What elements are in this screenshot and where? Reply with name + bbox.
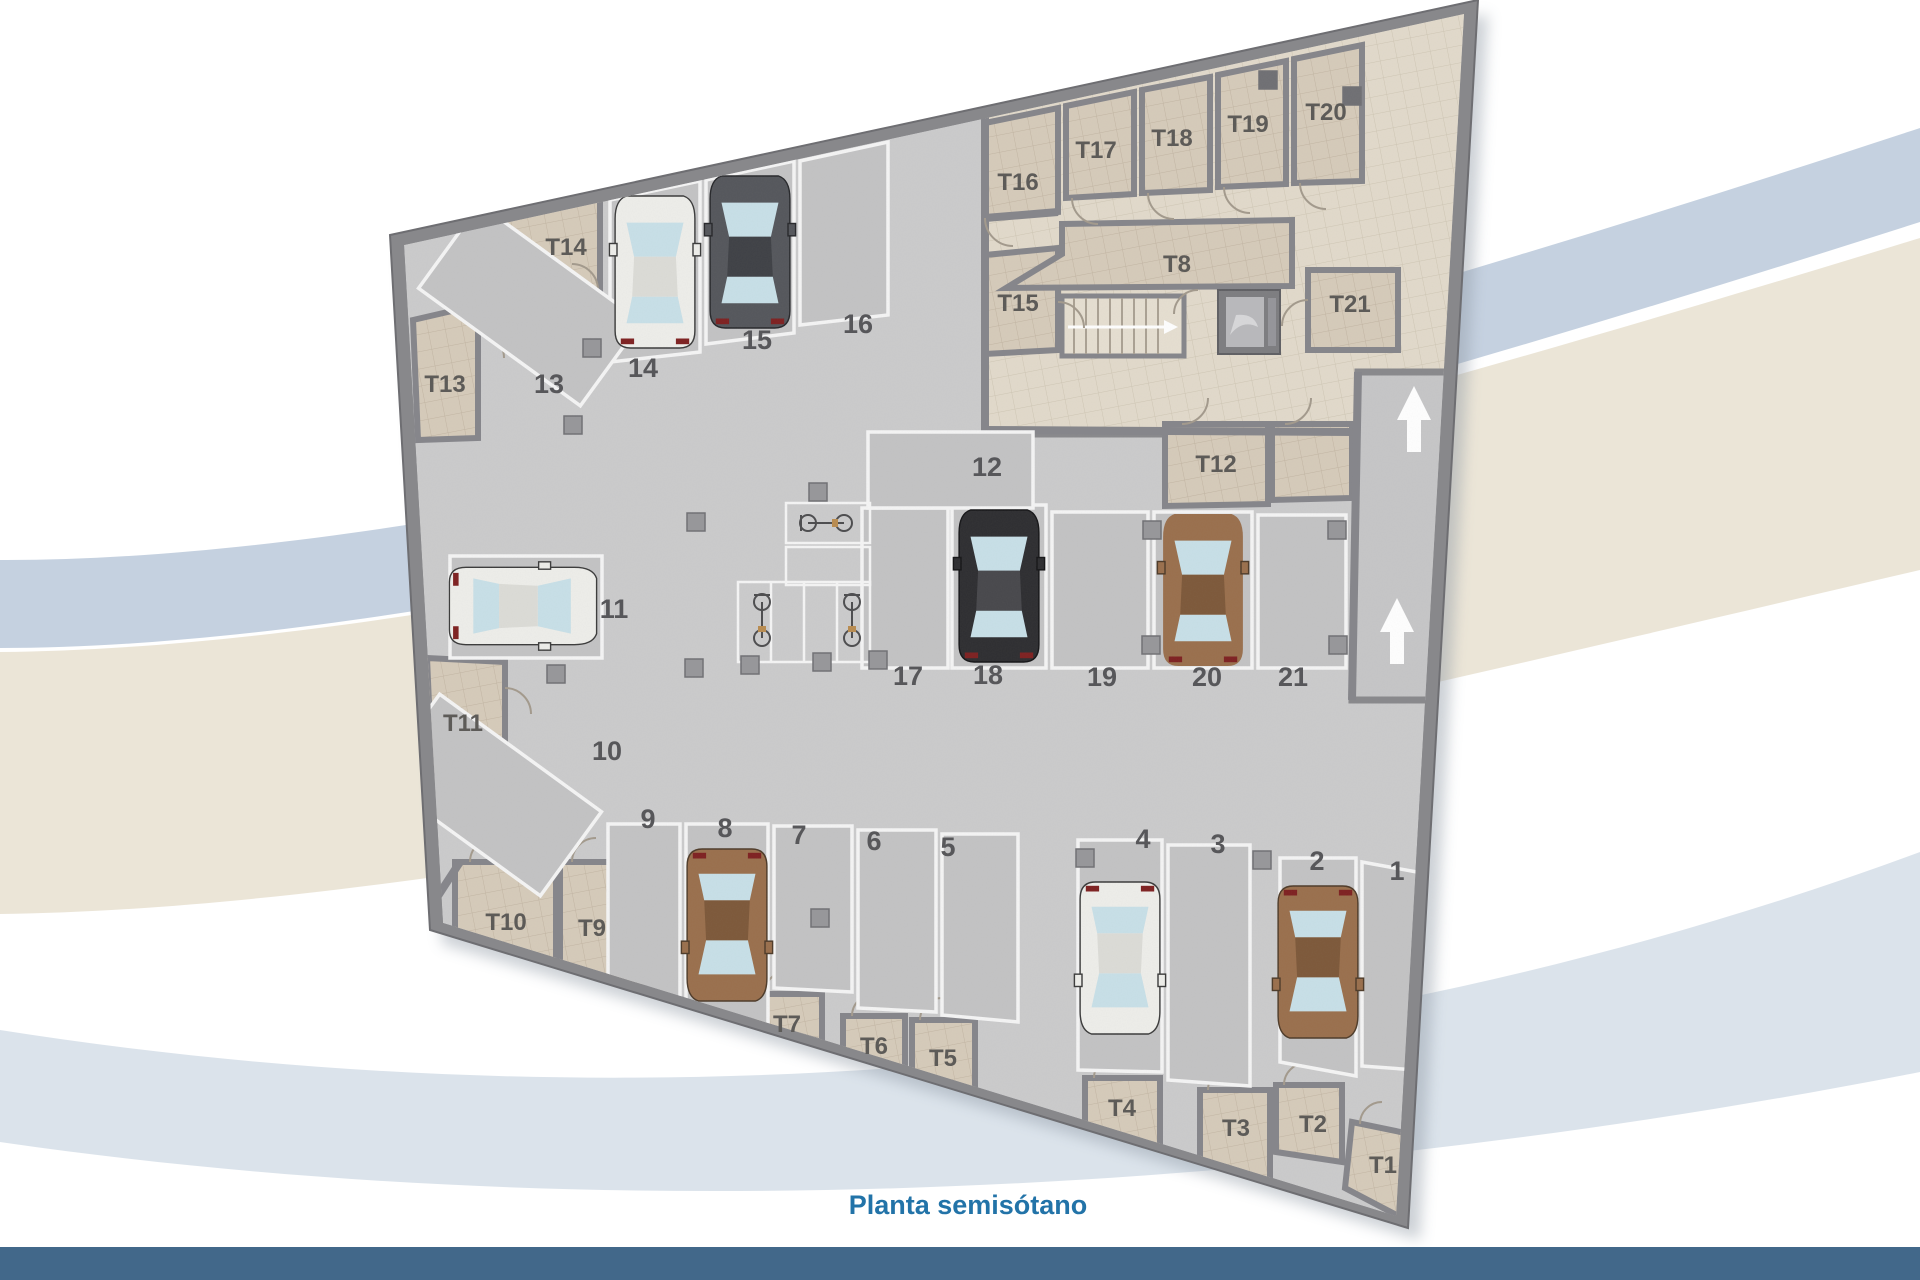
storage-label-t11: T11	[443, 710, 483, 737]
storage-label-t1: T1	[1369, 1152, 1397, 1179]
storage-label-t19: T19	[1227, 111, 1268, 138]
page-title: Planta semisótano	[849, 1190, 1088, 1220]
parking-label-10: 10	[592, 736, 622, 766]
storage-label-t5: T5	[929, 1045, 957, 1072]
storage-label-t15: T15	[997, 290, 1038, 317]
storage-label-t21: T21	[1329, 291, 1370, 318]
parking-label-7: 7	[791, 820, 806, 850]
storage-label-t16: T16	[997, 169, 1038, 196]
storage-label-t13: T13	[424, 371, 465, 398]
parking-label-15: 15	[742, 325, 772, 355]
parking-label-8: 8	[717, 813, 732, 843]
storage-label-t2: T2	[1299, 1111, 1327, 1138]
storage-label-t6: T6	[860, 1033, 888, 1060]
parking-label-14: 14	[628, 353, 658, 383]
parking-label-6: 6	[866, 826, 881, 856]
footer-bar	[0, 1247, 1920, 1280]
parking-label-13: 13	[534, 369, 564, 399]
parking-label-21: 21	[1278, 662, 1308, 692]
storage-label-t7: T7	[773, 1011, 801, 1038]
parking-label-20: 20	[1192, 662, 1222, 692]
parking-label-11: 11	[600, 594, 629, 624]
parking-label-18: 18	[973, 660, 1003, 690]
parking-label-12: 12	[972, 452, 1002, 482]
parking-label-4: 4	[1135, 824, 1150, 854]
storage-label-t18: T18	[1151, 125, 1192, 152]
storage-label-t4: T4	[1108, 1095, 1137, 1122]
storage-label-t17: T17	[1075, 137, 1116, 164]
storage-label-t14: T14	[545, 234, 587, 261]
parking-label-16: 16	[843, 309, 873, 339]
parking-label-9: 9	[640, 804, 655, 834]
parking-label-17: 17	[893, 661, 923, 691]
parking-label-19: 19	[1087, 662, 1117, 692]
storage-label-t8: T8	[1163, 251, 1191, 278]
storage-label-t3: T3	[1222, 1115, 1250, 1142]
storage-label-t9: T9	[578, 915, 606, 942]
parking-label-3: 3	[1210, 829, 1225, 859]
storage-label-t10: T10	[485, 909, 526, 936]
storage-label-t20: T20	[1305, 99, 1346, 126]
parking-label-2: 2	[1309, 846, 1324, 876]
floor-plan: 1 2 3 4 5 6 7 8 9 10 11 12 13 14 15 16 1…	[0, 0, 1920, 1280]
storage-label-t12: T12	[1195, 451, 1236, 478]
parking-label-5: 5	[940, 832, 955, 862]
floor-plan-page: 1 2 3 4 5 6 7 8 9 10 11 12 13 14 15 16 1…	[0, 0, 1920, 1280]
parking-label-1: 1	[1389, 856, 1404, 886]
